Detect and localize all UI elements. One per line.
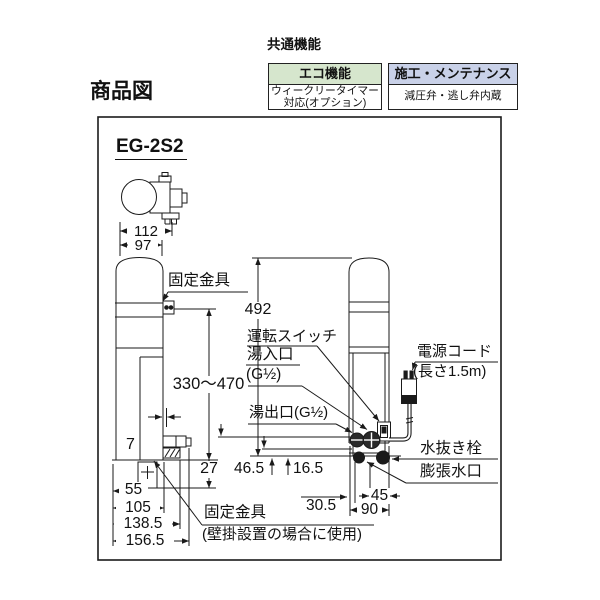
dim-drain-offset-16-5: 16.5 xyxy=(293,461,323,477)
label-drain-plug: 水抜き栓 xyxy=(420,441,482,457)
product-diagram-page: 共通機能 エコ機能 ウィークリータイマー 対応(オプション) 施工・メンテナンス… xyxy=(0,0,600,600)
maintenance-feature-box-title: 施工・メンテナンス xyxy=(389,64,517,85)
power-cord-drawing xyxy=(389,371,417,440)
dim-bottom-30-5: 30.5 xyxy=(306,498,336,514)
eco-feature-line2: 対応(オプション) xyxy=(269,98,381,110)
dim-base-55: 55 xyxy=(119,482,148,498)
label-operation-switch: 運転スイッチ xyxy=(247,329,337,345)
dim-gap-7: 7 xyxy=(126,437,135,454)
plan-view-drawing xyxy=(122,173,188,225)
label-bracket-top: 固定金具 xyxy=(168,273,230,289)
maintenance-feature-box: 施工・メンテナンス 減圧弁・逃し弁内蔵 xyxy=(388,63,518,110)
maintenance-feature-box-body: 減圧弁・逃し弁内蔵 xyxy=(389,85,517,107)
label-hot-water-inlet-size: (G½) xyxy=(246,367,281,383)
dim-port-height-46-5: 46.5 xyxy=(234,461,264,477)
dim-base-105: 105 xyxy=(116,500,160,516)
eco-feature-line1: ウィークリータイマー xyxy=(269,86,381,98)
label-expansion-port: 膨張水口 xyxy=(420,464,482,480)
label-power-cord: 電源コード xyxy=(417,344,492,360)
eco-feature-box: エコ機能 ウィークリータイマー 対応(オプション) xyxy=(268,63,382,110)
page-title: 商品図 xyxy=(90,81,153,103)
dim-top-width-body: 97 xyxy=(128,238,158,254)
eco-feature-box-body: ウィークリータイマー 対応(オプション) xyxy=(269,85,381,109)
eco-feature-box-title: エコ機能 xyxy=(269,64,381,85)
common-features-heading: 共通機能 xyxy=(267,38,321,52)
model-number: EG-2S2 xyxy=(115,137,187,160)
dim-base-138-5: 138.5 xyxy=(114,516,172,532)
label-hot-water-outlet: 湯出口(G½) xyxy=(249,405,328,421)
dim-base-156-5: 156.5 xyxy=(116,533,174,549)
label-power-cord-length: (長さ1.5m) xyxy=(413,364,486,380)
dim-height-overall: 492 xyxy=(241,302,275,319)
dim-bottom-90: 90 xyxy=(357,502,382,518)
label-bracket-bottom: 固定金具 xyxy=(204,505,266,521)
label-bracket-bottom-note: (壁掛設置の場合に使用) xyxy=(202,527,362,543)
front-view-drawing xyxy=(349,258,391,464)
dim-bracket-drop-27: 27 xyxy=(196,461,222,478)
label-hot-water-inlet: 湯入口 xyxy=(247,347,294,363)
dim-bracket-adjust-range: 330～470 xyxy=(169,376,248,393)
